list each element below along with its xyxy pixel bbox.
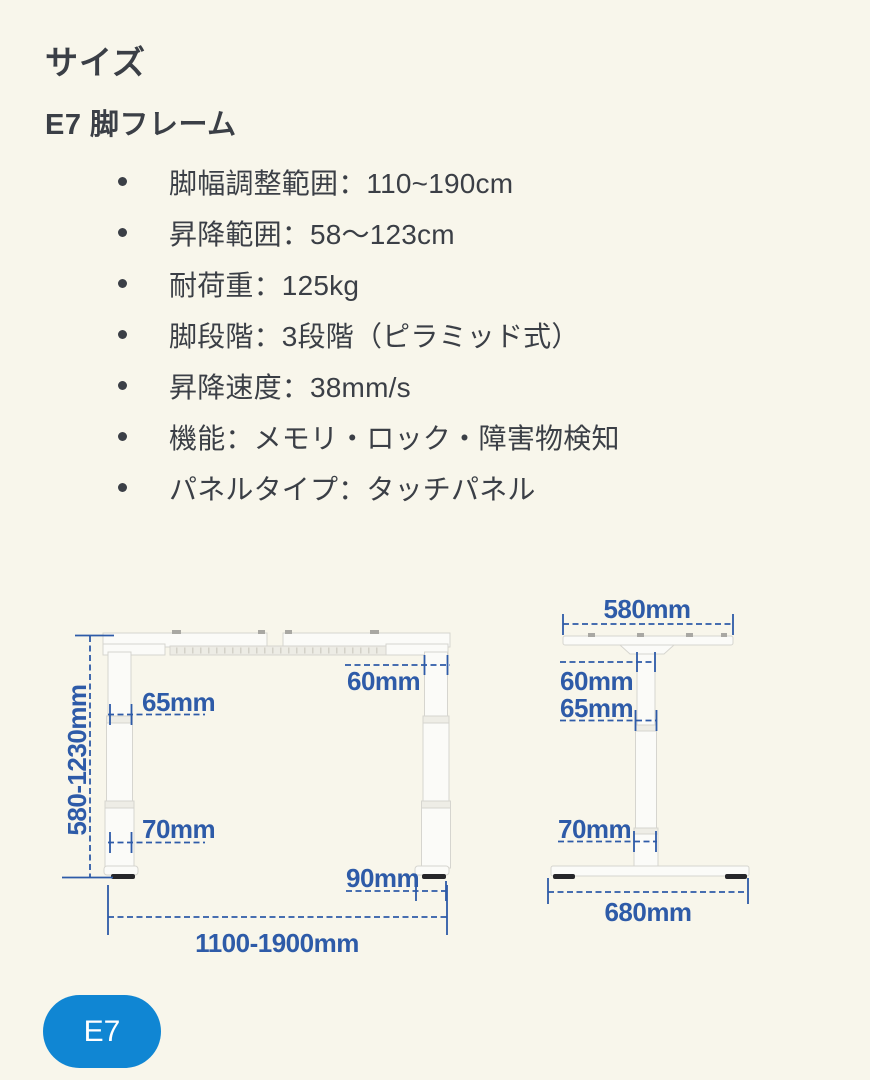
front-mid-leg-label: 65mm bbox=[142, 687, 215, 717]
spec-item: 耐荷重：125kg bbox=[0, 258, 870, 309]
bullet-icon bbox=[118, 228, 127, 237]
front-bottom-leg-label: 70mm bbox=[142, 814, 215, 844]
model-badge-e7[interactable]: E7 bbox=[43, 995, 161, 1068]
spec-item: 脚段階：3段階（ピラミッド式） bbox=[0, 309, 870, 360]
spec-item-label: 脚段階：3段階（ピラミッド式） bbox=[169, 315, 580, 355]
spec-item-label: 機能：メモリ・ロック・障害物検知 bbox=[169, 417, 620, 457]
spec-item: 昇降範囲：58〜123cm bbox=[0, 207, 870, 258]
side-bottom-col-label: 70mm bbox=[558, 814, 631, 844]
section-subtitle: E7 脚フレーム bbox=[45, 101, 237, 143]
spec-item-label: パネルタイプ：タッチパネル bbox=[169, 468, 536, 508]
spec-item: パネルタイプ：タッチパネル bbox=[0, 462, 870, 513]
side-foot-label: 680mm bbox=[604, 897, 691, 927]
side-mid-col-label: 65mm bbox=[560, 693, 633, 723]
spec-item: 昇降速度：38mm/s bbox=[0, 360, 870, 411]
spec-item-label: 昇降速度：38mm/s bbox=[169, 366, 411, 406]
dimensions-diagram: 580-1230mm 60mm 65mm 70mm 90mm 1100-1900… bbox=[0, 560, 870, 980]
bullet-icon bbox=[118, 279, 127, 288]
spec-item: 機能：メモリ・ロック・障害物検知 bbox=[0, 411, 870, 462]
side-top-label: 580mm bbox=[603, 594, 690, 624]
bullet-icon bbox=[118, 483, 127, 492]
front-foot-label: 90mm bbox=[346, 863, 419, 893]
page-title: サイズ bbox=[45, 36, 146, 84]
spec-item: 脚幅調整範囲：110~190cm bbox=[0, 156, 870, 207]
spec-item-label: 昇降範囲：58〜123cm bbox=[169, 213, 455, 253]
bullet-icon bbox=[118, 381, 127, 390]
spec-item-label: 脚幅調整範囲：110~190cm bbox=[169, 162, 513, 202]
bullet-icon bbox=[118, 432, 127, 441]
bullet-icon bbox=[118, 330, 127, 339]
front-height-label: 580-1230mm bbox=[62, 684, 92, 835]
spec-list: 脚幅調整範囲：110~190cm 昇降範囲：58〜123cm 耐荷重：125kg… bbox=[0, 156, 870, 513]
side-top-col-label: 60mm bbox=[560, 666, 633, 696]
bullet-icon bbox=[118, 177, 127, 186]
front-top-leg-label: 60mm bbox=[347, 666, 420, 696]
spec-item-label: 耐荷重：125kg bbox=[169, 264, 359, 304]
front-width-label: 1100-1900mm bbox=[195, 928, 359, 958]
